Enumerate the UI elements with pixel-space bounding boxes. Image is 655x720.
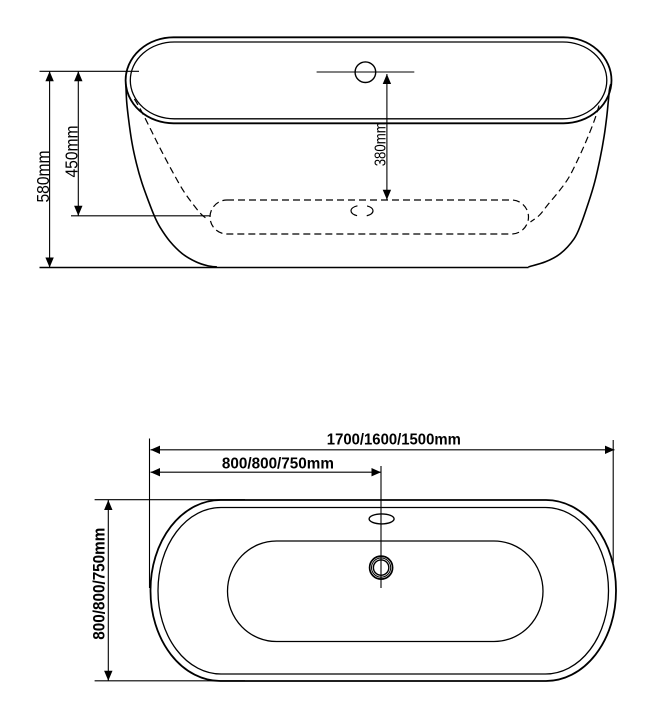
svg-text:800/800/750mm: 800/800/750mm [222,455,334,472]
svg-text:580mm: 580mm [33,151,53,203]
svg-text:1700/1600/1500mm: 1700/1600/1500mm [327,431,461,448]
svg-text:800/800/750mm: 800/800/750mm [90,528,108,640]
svg-text:380mm: 380mm [372,122,389,166]
svg-text:450mm: 450mm [62,126,82,178]
